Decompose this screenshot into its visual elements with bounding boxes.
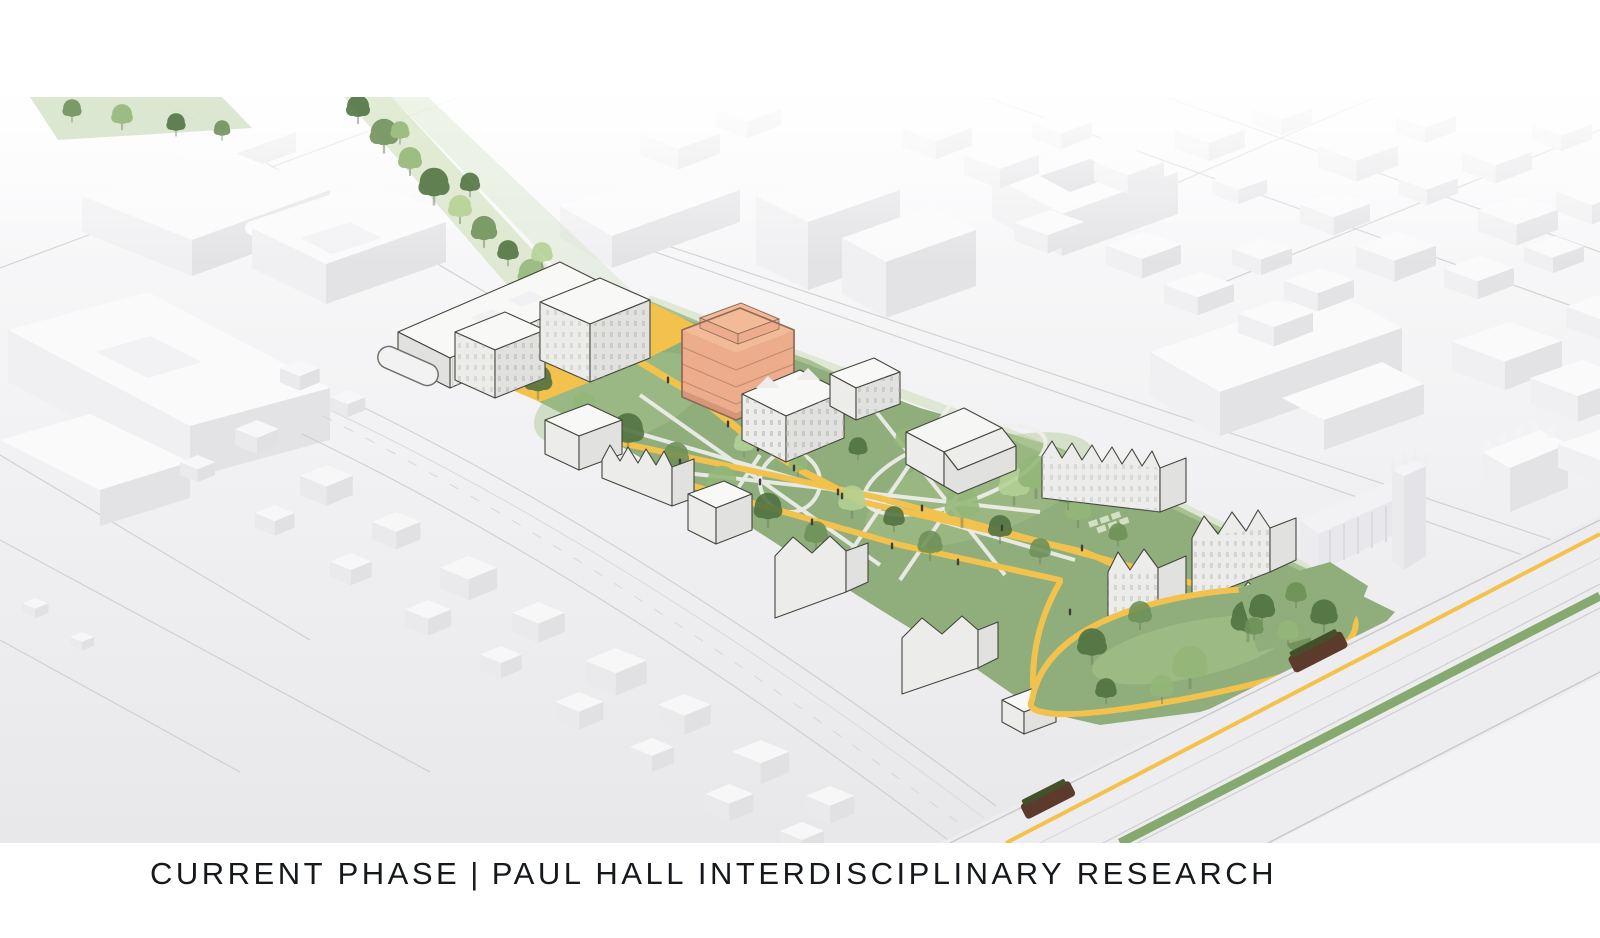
masterplan-page: CURRENT PHASE|PAUL HALL INTERDISCIPLINAR… (0, 0, 1600, 938)
caption-divider: | (470, 856, 482, 891)
caption: CURRENT PHASE|PAUL HALL INTERDISCIPLINAR… (150, 856, 1277, 892)
top-margin-band (0, 0, 1600, 97)
caption-phase: CURRENT PHASE (150, 856, 460, 891)
caption-project: PAUL HALL INTERDISCIPLINARY RESEARCH (492, 856, 1277, 891)
campus-axonometric-rendering (0, 0, 1600, 938)
